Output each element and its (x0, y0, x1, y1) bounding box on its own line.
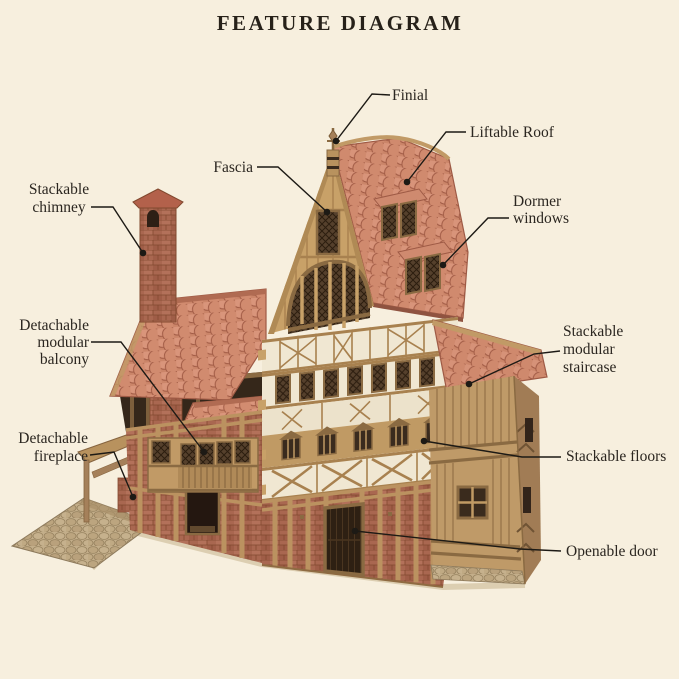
annex-side-window-2 (523, 487, 531, 513)
label-fireplace-1: Detachable (18, 430, 88, 447)
chimney-arch-opening (147, 210, 159, 227)
gable-lattice-window (317, 211, 339, 254)
balcony-slat-panel (178, 467, 252, 488)
label-openable-door: Openable door (566, 543, 659, 560)
label-stackable-chimney-2: chimney (32, 199, 86, 216)
feature-diagram-page: FEATURE DIAGRAM Finial Liftable Roof Fas… (0, 0, 679, 679)
annex-window (458, 487, 487, 518)
openable-door (325, 504, 363, 575)
label-balcony-3: balcony (40, 351, 89, 368)
page-title: FEATURE DIAGRAM (217, 11, 464, 35)
feature-diagram-canvas: FEATURE DIAGRAM Finial Liftable Roof Fas… (0, 0, 679, 679)
label-staircase-1: Stackable (563, 323, 623, 340)
label-stackable-chimney-1: Stackable (29, 181, 89, 198)
label-staircase-2: modular (563, 341, 615, 358)
label-balcony-1: Detachable (19, 317, 89, 334)
label-liftable-roof: Liftable Roof (470, 124, 555, 141)
label-fireplace-2: fireplace (34, 448, 88, 465)
facade-upper-floors (258, 317, 458, 502)
chimney (133, 189, 183, 322)
label-staircase-3: staircase (563, 359, 616, 376)
label-dormer-windows-2: windows (513, 210, 569, 227)
balcony (148, 438, 258, 492)
label-balcony-2: modular (37, 334, 89, 351)
label-dormer-windows-1: Dormer (513, 193, 562, 210)
label-finial: Finial (392, 87, 428, 104)
label-fascia: Fascia (213, 159, 253, 176)
annex-side-window (525, 418, 533, 442)
label-stackable-floors: Stackable floors (566, 448, 666, 465)
annex-front (429, 376, 525, 584)
